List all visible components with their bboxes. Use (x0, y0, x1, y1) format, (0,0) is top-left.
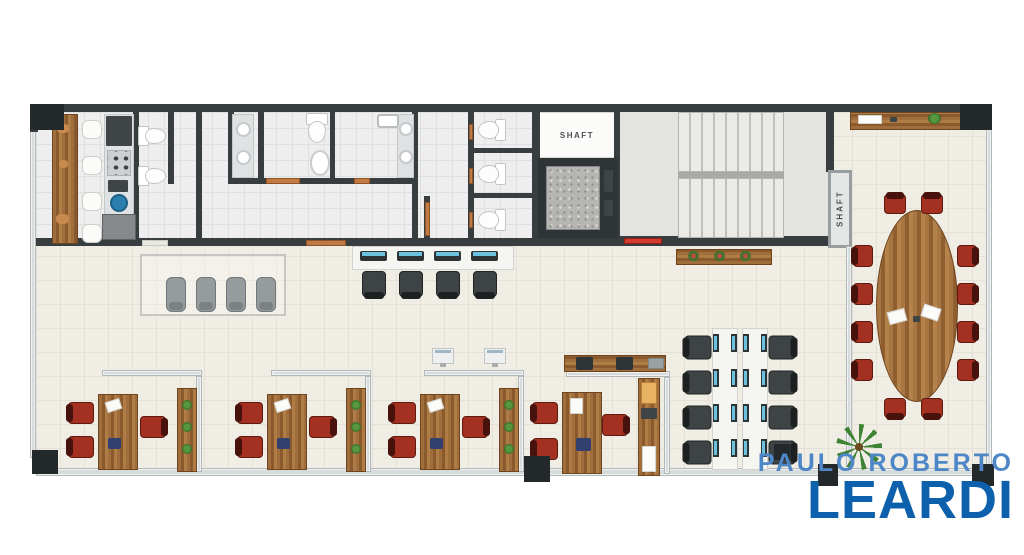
door (469, 168, 473, 184)
structural-column (960, 104, 992, 130)
computer-monitor (731, 334, 737, 352)
appliance (108, 180, 128, 192)
refrigerator (102, 214, 136, 240)
door (266, 178, 300, 184)
computer-monitor (397, 251, 424, 261)
lounge-chair (196, 277, 216, 312)
bar-stool (82, 192, 102, 211)
washbasin (310, 150, 330, 176)
computer-monitor (471, 251, 498, 261)
potted-plant (351, 422, 361, 432)
computer-monitor (713, 404, 719, 422)
toilet (138, 124, 166, 148)
emergency-door (624, 238, 662, 244)
computer-monitor (731, 404, 737, 422)
red-chair (884, 194, 906, 214)
desk-item (108, 438, 121, 449)
computer-monitor (360, 251, 387, 261)
computer-monitor (743, 404, 749, 422)
computer-monitor (713, 369, 719, 387)
red-chair (957, 321, 977, 343)
computer-monitor (743, 369, 749, 387)
red-chair (602, 414, 628, 436)
red-chair (957, 283, 977, 305)
red-chair (957, 245, 977, 267)
shaft-label-top: SHAFT (538, 112, 616, 158)
door (142, 240, 168, 246)
red-chair (921, 194, 943, 214)
conference-table (876, 210, 958, 402)
red-chair (140, 416, 166, 438)
red-chair (237, 402, 263, 424)
desk-item (430, 438, 443, 449)
wall (168, 112, 174, 184)
task-chair (436, 271, 460, 297)
brand-line-2: LEARDI (758, 473, 1014, 527)
potted-plant (351, 400, 361, 410)
printer (576, 357, 593, 370)
computer-monitor (743, 334, 749, 352)
potted-plant (351, 444, 361, 454)
structural-column (524, 456, 550, 482)
door (469, 124, 473, 140)
computer-monitor (761, 404, 767, 422)
appliance (604, 200, 613, 216)
red-chair (853, 245, 873, 267)
door (425, 202, 430, 236)
computer-monitor (434, 251, 461, 261)
task-chair (473, 271, 497, 297)
elevator-cab (546, 166, 600, 230)
red-chair (853, 359, 873, 381)
bar-stool (82, 224, 102, 243)
wall (826, 112, 834, 172)
decor-item (56, 214, 69, 224)
washbasin (399, 150, 413, 164)
wall (228, 178, 418, 184)
computer-monitor (713, 439, 719, 457)
appliance (913, 316, 920, 322)
computer-monitor (432, 348, 454, 364)
lounge-chair (226, 277, 246, 312)
cooktop (107, 150, 131, 176)
computer-monitor (743, 439, 749, 457)
glass-partition (30, 128, 36, 458)
flower-vase (740, 251, 751, 261)
task-chair (399, 271, 423, 297)
task-chair (685, 441, 712, 465)
red-chair (853, 321, 873, 343)
desk-item (277, 438, 290, 449)
potted-plant (504, 444, 514, 454)
wall (468, 193, 534, 198)
glass-partition (986, 128, 992, 472)
potted-plant (182, 422, 192, 432)
task-chair (685, 336, 712, 360)
bar-stool (82, 120, 102, 139)
desk-item (648, 358, 664, 369)
structural-column (32, 450, 58, 474)
door (306, 240, 346, 246)
red-chair (390, 402, 416, 424)
decor-item (59, 160, 68, 168)
door (469, 212, 473, 228)
wall (196, 112, 202, 244)
potted-plant (928, 113, 941, 124)
potted-plant (182, 444, 192, 454)
task-chair (685, 406, 712, 430)
office-floorplan-rendering: SHAFT SHAFT PAULO ROBERTO LEARDI (0, 0, 1024, 555)
brand-logo: PAULO ROBERTO LEARDI (758, 451, 1014, 527)
red-chair (390, 436, 416, 458)
red-chair (309, 416, 335, 438)
glass-partition (271, 370, 371, 376)
toilet (478, 161, 506, 187)
glass-partition (102, 370, 202, 376)
bar-stool (82, 156, 102, 175)
glass-partition (664, 377, 670, 474)
toilet (478, 207, 506, 233)
task-chair (362, 271, 386, 297)
flower-vase (688, 251, 699, 261)
shaft-label-side: SHAFT (828, 170, 852, 248)
door (354, 178, 370, 184)
wall (330, 112, 335, 184)
appliance (641, 408, 657, 419)
task-chair (769, 336, 796, 360)
computer-monitor (731, 439, 737, 457)
papers (858, 115, 882, 124)
washbasin (236, 122, 251, 137)
wall (30, 104, 988, 112)
kitchen-sink (110, 194, 128, 212)
washbasin (399, 122, 413, 136)
toilet (478, 117, 506, 143)
red-chair (237, 436, 263, 458)
appliance (890, 117, 897, 122)
potted-plant (504, 422, 514, 432)
task-chair (769, 371, 796, 395)
potted-plant (182, 400, 192, 410)
papers (642, 446, 656, 472)
flower-vase (714, 251, 725, 261)
red-chair (884, 398, 906, 418)
toilet (304, 113, 330, 143)
lounge-chair (166, 277, 186, 312)
red-chair (462, 416, 488, 438)
red-chair (68, 402, 94, 424)
desk-item (576, 438, 591, 451)
red-chair (532, 402, 558, 424)
papers (570, 398, 583, 414)
task-chair (685, 371, 712, 395)
red-chair (68, 436, 94, 458)
red-chair (957, 359, 977, 381)
appliance (604, 170, 613, 192)
printer (616, 357, 633, 370)
appliance (106, 116, 132, 146)
sink (377, 114, 399, 128)
task-chair (769, 406, 796, 430)
stair-flight (678, 178, 784, 238)
red-chair (921, 398, 943, 418)
lounge-chair (256, 277, 276, 312)
wall (258, 112, 264, 184)
toilet (138, 164, 166, 188)
structural-column (30, 104, 64, 130)
computer-monitor (713, 334, 719, 352)
wall (468, 148, 534, 153)
computer-monitor (761, 334, 767, 352)
red-chair (853, 283, 873, 305)
glass-partition (424, 370, 524, 376)
stair-flight (678, 112, 784, 172)
computer-monitor (731, 369, 737, 387)
computer-monitor (484, 348, 506, 364)
storage-box (641, 382, 657, 404)
computer-monitor (761, 369, 767, 387)
potted-plant (504, 400, 514, 410)
wood-cabinet (52, 114, 78, 244)
washbasin (236, 150, 251, 165)
